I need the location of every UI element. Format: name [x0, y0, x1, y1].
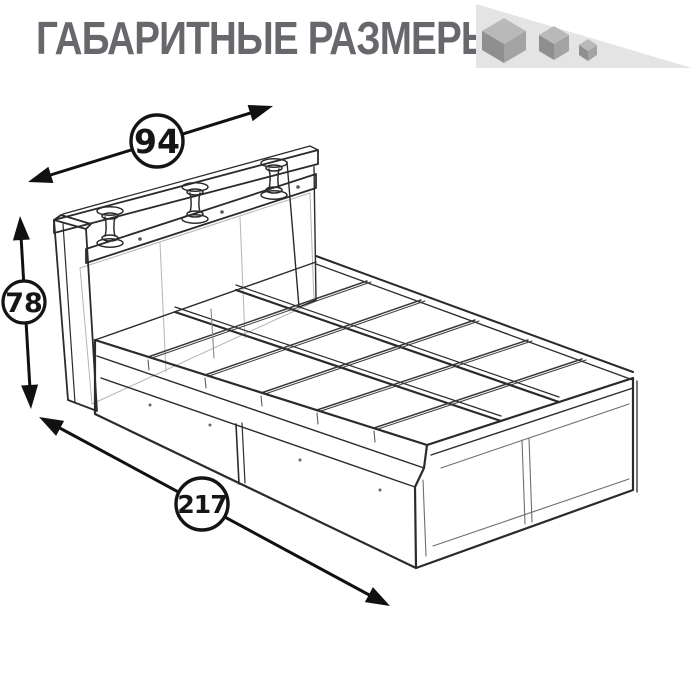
spool-post — [97, 207, 123, 247]
headboard-left-column — [54, 215, 97, 411]
bed-foot-end — [416, 378, 637, 568]
page: ГАБАРИТНЫЕ РАЗМЕРЫ — [0, 0, 700, 690]
bed-slat-grid — [95, 256, 633, 429]
height-dimension-label: 78 — [5, 288, 43, 319]
length-dimension-label: 217 — [177, 490, 226, 519]
bed-dimension-drawing: 94 78 217 — [0, 0, 700, 690]
headboard-mid-rail — [86, 174, 316, 263]
headboard — [54, 146, 318, 411]
width-dimension-label: 94 — [134, 122, 180, 161]
headboard-spool-posts — [97, 159, 287, 247]
